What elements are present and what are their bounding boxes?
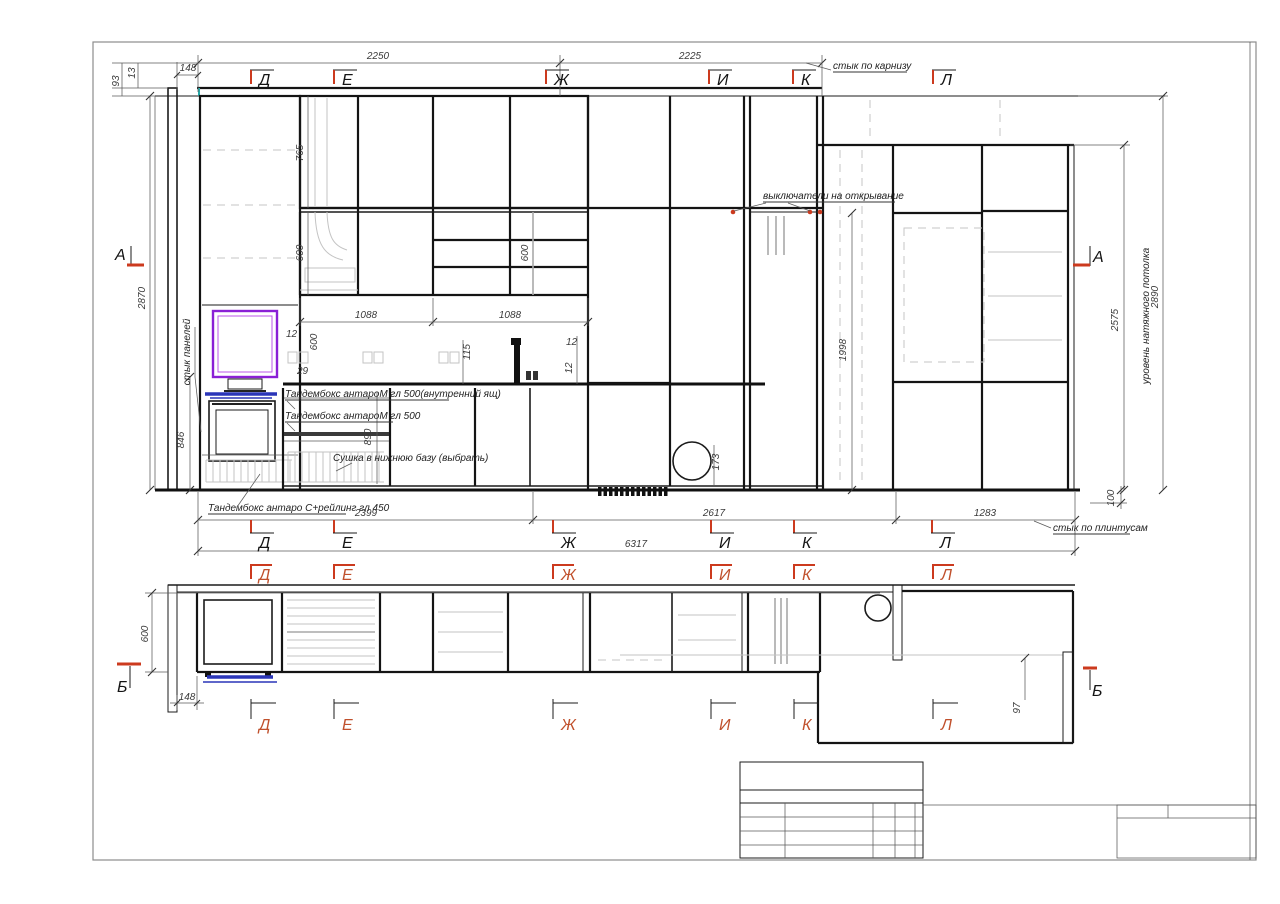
svg-text:К: К: [801, 72, 812, 89]
dim-1088-l: 1088: [355, 310, 378, 321]
dim-1998: 1998: [838, 338, 849, 361]
dim-2225: 2225: [678, 51, 702, 62]
tall-cabinets-middle: [588, 96, 823, 490]
svg-text:К: К: [802, 567, 813, 584]
note-tandembox: Тандембокс антароМ гл 500: [285, 410, 421, 422]
dim-12-r1: 12: [566, 337, 578, 348]
section-a-left: А: [114, 246, 144, 266]
dim-plan-600: 600: [140, 625, 151, 642]
plan-bot-k: К: [794, 699, 819, 734]
note-cornice: стык по карнизу: [833, 61, 912, 72]
left-wall: [168, 585, 177, 712]
marker-top-zh: Ж: [545, 70, 570, 89]
small-appliance: [228, 379, 262, 389]
plan-circle: [865, 595, 891, 621]
svg-text:И: И: [719, 717, 731, 734]
dim-600-bs: 600: [309, 333, 320, 350]
section-b-right: Б: [1083, 668, 1102, 700]
faucet: [511, 338, 538, 383]
rail-drawer-ghost: [206, 460, 292, 482]
title-block: [740, 762, 1256, 858]
note-tandembox-inner: Тандембокс антароМ гл 500(внутренний ящ): [285, 388, 501, 400]
section-markers-top: Д Е Ж И К Л: [250, 70, 956, 89]
marker-top-d: Д: [250, 70, 274, 89]
section-b-left: Б: [117, 664, 141, 696]
svg-text:Д: Д: [257, 717, 270, 734]
marker-top-l: Л: [932, 70, 956, 89]
dim-2575: 2575: [1110, 308, 1121, 332]
plan-top-d: Д: [250, 565, 272, 584]
dim-2617: 2617: [702, 508, 726, 519]
marker-bot-d: Д: [250, 520, 274, 552]
tv-niche: [213, 311, 277, 377]
plan-top-zh: Ж: [552, 565, 577, 584]
svg-text:А: А: [1092, 249, 1104, 266]
dim-29: 29: [296, 366, 309, 377]
note-switches: выключатели на открывание: [763, 191, 904, 202]
tall-cabinet-left: [200, 96, 300, 490]
dim-plan-97: 97: [1012, 702, 1023, 714]
section-a-right: А: [1073, 246, 1104, 266]
wall-lines: [155, 88, 1165, 490]
plan-top-e: Е: [333, 565, 355, 584]
fridge-plan: [203, 600, 277, 682]
svg-text:Д: Д: [257, 567, 270, 584]
svg-text:И: И: [719, 567, 731, 584]
corner-wall: [893, 585, 902, 660]
plan-top-l: Л: [932, 565, 954, 584]
plan-bot-d: Д: [251, 699, 276, 734]
svg-text:Б: Б: [117, 679, 127, 696]
svg-text:К: К: [802, 717, 813, 734]
svg-text:Д: Д: [257, 535, 270, 552]
svg-text:И: И: [719, 535, 731, 552]
marker-top-k: К: [792, 70, 816, 89]
plan-bot-i: И: [711, 699, 736, 734]
dim-93: 93: [111, 75, 122, 87]
dim-1283: 1283: [974, 508, 997, 519]
marker-top-i: И: [708, 70, 732, 89]
dim-1088-r: 1088: [499, 310, 522, 321]
section-markers-bottom: Д Е Ж И К Л: [250, 520, 955, 552]
marker-bot-zh: Ж: [552, 520, 577, 552]
dim-148-top: 148: [180, 63, 197, 74]
marker-bot-e: Е: [333, 520, 357, 552]
dim-765: 765: [295, 144, 306, 161]
note-ceiling-level: уровень натяжного потолка: [1141, 247, 1152, 385]
dim-115: 115: [462, 344, 473, 360]
page-frame: [93, 42, 1256, 860]
note-panels: стык панелей: [182, 318, 193, 385]
backsplash: [283, 338, 765, 384]
dim-2399: 2399: [354, 508, 378, 519]
plan-top-k: К: [793, 565, 815, 584]
dim-2250: 2250: [366, 51, 390, 62]
note-plinth: стык по плинтусам: [1053, 523, 1148, 534]
dim-173: 173: [711, 453, 722, 470]
svg-text:Ж: Ж: [553, 72, 570, 89]
svg-text:Л: Л: [940, 72, 952, 89]
switch-dot: [731, 210, 736, 215]
svg-text:Ж: Ж: [560, 567, 577, 584]
dim-846: 846: [176, 431, 187, 448]
svg-text:Л: Л: [940, 717, 952, 734]
note-dryer: Сушка в нижнюю базу (выбрать): [333, 452, 488, 464]
svg-text:К: К: [802, 535, 813, 552]
dim-13: 13: [127, 67, 138, 79]
socket-pair: [288, 352, 459, 363]
svg-text:Л: Л: [940, 567, 952, 584]
switch-dot: [818, 210, 823, 215]
plan-dimensions: 600 148 97: [140, 589, 1029, 714]
dim-plan-148: 148: [179, 692, 196, 703]
dim-12-r2: 12: [564, 362, 575, 374]
hood-duct-ghost: [300, 98, 358, 290]
plan-top-i: И: [710, 565, 732, 584]
dim-2870: 2870: [137, 286, 148, 310]
svg-text:Л: Л: [939, 535, 951, 552]
dim-600-shelf: 600: [520, 244, 531, 261]
vent-circle: [673, 442, 711, 480]
plan-bot-zh: Ж: [553, 699, 578, 734]
svg-text:Ж: Ж: [560, 717, 577, 734]
plan-markers-top: Д Е Ж И К Л: [250, 565, 954, 584]
svg-text:И: И: [717, 72, 729, 89]
svg-text:А: А: [114, 247, 126, 264]
svg-text:Д: Д: [257, 72, 270, 89]
dim-12-l: 12: [286, 329, 298, 340]
svg-text:Б: Б: [1092, 683, 1102, 700]
dim-890: 890: [363, 428, 374, 445]
svg-text:Е: Е: [342, 535, 353, 552]
plan-bot-e: Е: [334, 699, 359, 734]
dim-600-hood: 600: [295, 244, 306, 261]
marker-top-e: Е: [333, 70, 357, 89]
elevation-view: 2250 2225 148 93 13 стык по карнизу 2870: [111, 51, 1168, 556]
svg-text:Е: Е: [342, 717, 353, 734]
elevation-dimensions: 2250 2225 148 93 13 стык по карнизу 2870: [111, 51, 1168, 556]
plan-ghost-details: [287, 598, 1063, 664]
svg-text:Ж: Ж: [560, 535, 577, 552]
svg-text:Е: Е: [342, 567, 353, 584]
kitchen-drawing: 2250 2225 148 93 13 стык по карнизу 2870: [0, 0, 1280, 904]
plan-markers-bottom: Д Е Ж И К Л: [251, 699, 958, 734]
dim-6317: 6317: [625, 539, 648, 550]
marker-bot-l: Л: [931, 520, 955, 552]
svg-text:Е: Е: [342, 72, 353, 89]
marker-bot-i: И: [710, 520, 734, 552]
dim-100: 100: [1106, 489, 1117, 506]
plan-view: 600 148 97 Д Е Ж И К Л Д Е Ж И К Л: [117, 565, 1102, 743]
plan-bot-l: Л: [933, 699, 958, 734]
marker-bot-k: К: [793, 520, 817, 552]
